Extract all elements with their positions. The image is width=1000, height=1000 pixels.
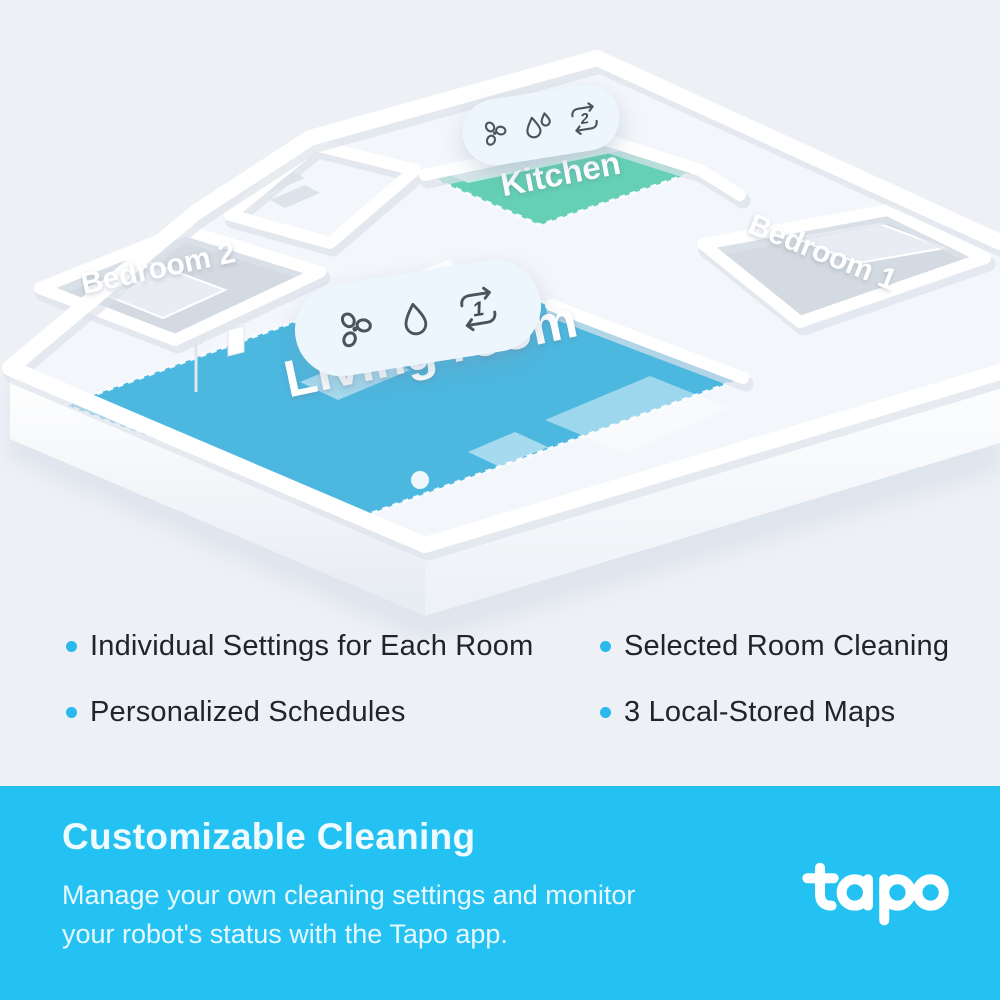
feature-text: Selected Room Cleaning [624,630,949,663]
cleaning-cycles-icon: 2 [563,99,606,138]
tapo-logo [800,858,958,928]
list-item: Selected Room Cleaning [600,630,949,663]
fan-icon [476,114,513,151]
cleaning-cycles-icon: 1 [449,282,507,335]
list-item: 3 Local-Stored Maps [600,696,949,729]
bullet-dot [600,707,611,718]
feature-text: Personalized Schedules [90,696,406,729]
fan-icon [328,302,381,355]
kitchen-cycle-count: 2 [578,110,590,127]
banner-description-line2: your robot's status with the Tapo app. [62,915,635,954]
banner-description: Manage your own cleaning settings and mo… [62,876,635,954]
feature-text: Individual Settings for Each Room [90,630,533,663]
bullet-dot [66,707,77,718]
two-water-drops-icon [518,106,559,144]
bullet-dot [600,641,611,652]
banner-title: Customizable Cleaning [62,816,475,858]
bullet-dot [66,641,77,652]
living-room-cycle-count: 1 [471,297,486,320]
water-drop-icon [390,293,440,343]
feature-text: 3 Local-Stored Maps [624,696,895,729]
banner: Customizable Cleaning Manage your own cl… [0,786,1000,1000]
list-item: Individual Settings for Each Room [66,630,533,663]
banner-description-line1: Manage your own cleaning settings and mo… [62,876,635,915]
list-item: Personalized Schedules [66,696,533,729]
robot-vacuum [411,471,429,489]
marketing-page: Living room Kitchen Bedroom 1 Bedroom 2 … [0,0,1000,1000]
